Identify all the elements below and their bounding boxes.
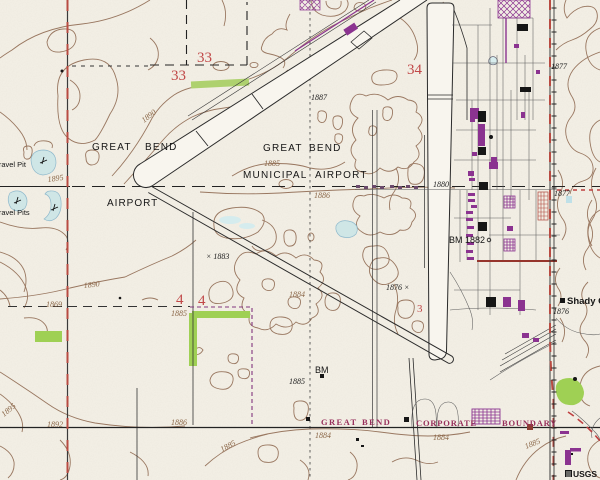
svg-text:BEND: BEND (145, 142, 178, 153)
svg-text:Shady C: Shady C (567, 296, 600, 307)
svg-text:1886: 1886 (171, 418, 187, 427)
svg-text:AIRPORT: AIRPORT (315, 170, 368, 181)
svg-text:1887: 1887 (311, 93, 328, 102)
svg-text:4: 4 (176, 292, 184, 308)
svg-text:1892: 1892 (47, 420, 63, 429)
svg-text:MUNICIPAL: MUNICIPAL (243, 170, 308, 181)
svg-text:BEND: BEND (362, 417, 391, 427)
svg-text:GREAT: GREAT (321, 417, 358, 427)
svg-text:USGS: USGS (573, 469, 597, 479)
svg-text:BOUNDARY: BOUNDARY (502, 418, 557, 428)
svg-text:1884: 1884 (289, 290, 305, 299)
svg-text:CORPORATE: CORPORATE (416, 418, 477, 428)
svg-text:1885: 1885 (264, 159, 280, 168)
svg-text:34: 34 (407, 62, 423, 78)
svg-text:1885: 1885 (289, 377, 305, 386)
svg-text:BM: BM (315, 365, 329, 375)
svg-text:1877: 1877 (551, 62, 568, 71)
svg-text:GREAT: GREAT (92, 142, 132, 153)
svg-text:1884: 1884 (315, 431, 331, 440)
svg-text:1876: 1876 (553, 307, 569, 316)
svg-text:1886: 1886 (314, 191, 330, 200)
svg-text:1885: 1885 (171, 309, 187, 318)
svg-text:3: 3 (417, 303, 423, 315)
svg-text:1869: 1869 (46, 300, 62, 309)
svg-text:1876 ×: 1876 × (386, 283, 409, 292)
svg-text:1890: 1890 (83, 279, 100, 290)
svg-text:1877: 1877 (554, 189, 571, 198)
svg-text:BM 1882: BM 1882 (449, 235, 485, 245)
svg-text:33: 33 (197, 50, 212, 66)
svg-text:1884: 1884 (433, 433, 449, 442)
svg-text:Gravel Pits: Gravel Pits (0, 208, 30, 217)
svg-text:× 1883: × 1883 (206, 252, 229, 261)
svg-text:Gravel Pit: Gravel Pit (0, 160, 27, 169)
svg-text:AIRPORT: AIRPORT (107, 198, 158, 209)
svg-text:GREAT: GREAT (263, 143, 303, 154)
svg-text:BEND: BEND (309, 143, 342, 154)
svg-text:4: 4 (198, 293, 206, 309)
svg-text:1880: 1880 (433, 180, 449, 189)
svg-text:33: 33 (171, 68, 186, 84)
